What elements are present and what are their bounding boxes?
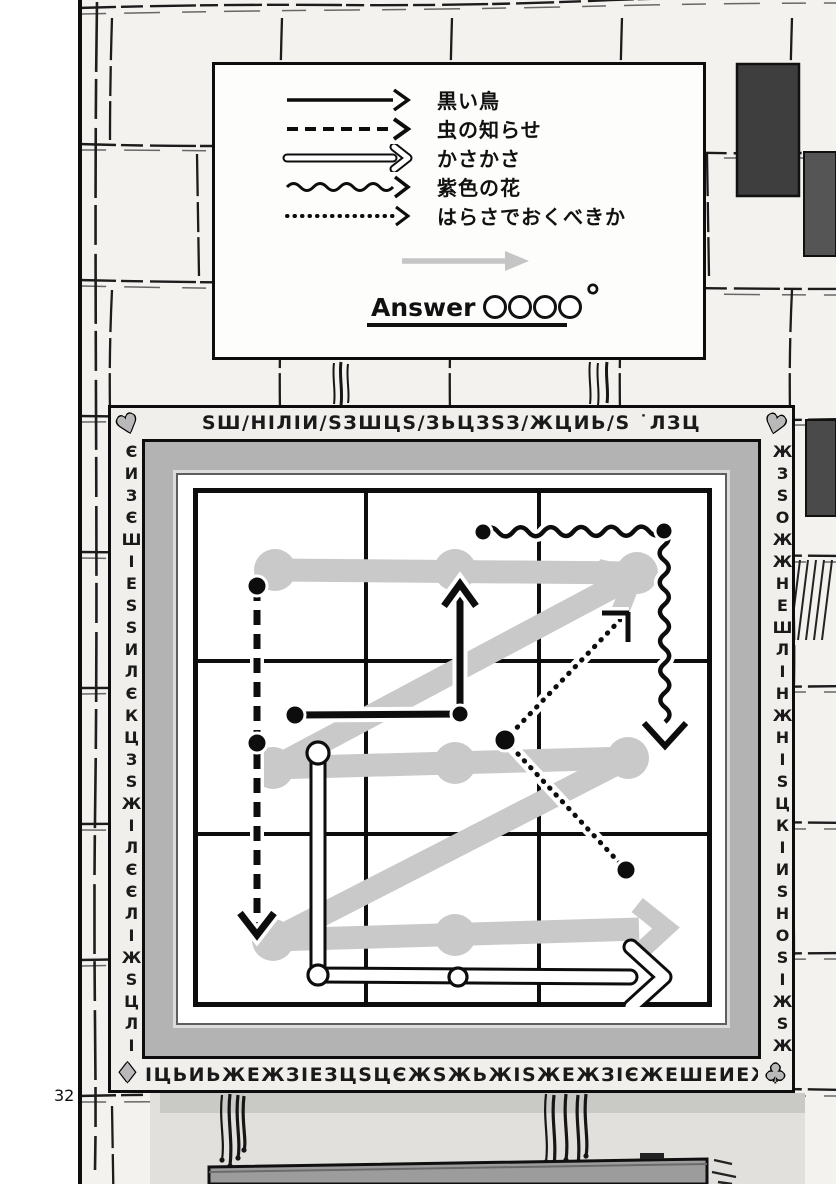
answer-blank-circles: [483, 295, 583, 319]
solid-arrow-icon: [281, 86, 413, 114]
answer-circle: [558, 295, 582, 319]
answer-row: Answer °: [371, 291, 601, 323]
legend-item: はらさでおくべきか: [215, 201, 703, 230]
legend-item-label: 黒い鳥: [437, 85, 500, 114]
legend-item-label: かさかさ: [437, 143, 521, 172]
wavy-arrow: [287, 177, 408, 197]
answer-circle: [533, 295, 557, 319]
legend-box: 黒い鳥虫の知らせかさかさ紫色の花はらさでおくべきか Answer °: [212, 62, 706, 360]
club-suit-icon: ♣: [759, 1057, 792, 1090]
gray-answer-arrow-icon: [399, 249, 543, 273]
answer-circle: [508, 295, 532, 319]
answer-circle: [483, 295, 507, 319]
frame-border-text-bottom: ІЦЬИЬЖЕЖЗІЕЗЦЅЦЄЖЅЖЬЖІЅЖЕЖЗІЄЖЕШЕИЕЖЕЖ: [145, 1060, 758, 1090]
picture-frame: ЅШ/НІЛІИ/ЅЗШЦЅ/ЗЬЦЗЅЗ/ЖЦИЬ/Ѕ ˙ЛЗЦ ІЦЬИЬЖ…: [108, 405, 795, 1093]
legend-rows: 黒い鳥虫の知らせかさかさ紫色の花はらさでおくべきか: [215, 85, 703, 230]
diamond-suit-icon: ♦: [111, 1057, 144, 1090]
dashed-arrow: [287, 119, 408, 139]
wavy-arrow-icon: [281, 173, 413, 201]
legend-item: 虫の知らせ: [215, 114, 703, 143]
legend-item: 黒い鳥: [215, 85, 703, 114]
heart-suit-icon: ♥: [755, 404, 795, 444]
legend-item-label: 紫色の花: [437, 172, 521, 201]
puzzle-grid: [193, 488, 712, 1007]
answer-label: Answer: [371, 293, 475, 322]
degree-mark: °: [584, 293, 601, 303]
dotted-arrow-icon: [281, 202, 413, 230]
page-number: 32: [54, 1086, 74, 1105]
double-arrow-icon: [281, 144, 413, 172]
frame-border-text-right: ЖЗЅОЖЖНЕШЛІНЖНІЅЦКІИЅНОЅІЖЅЖІЛЕЖЗЖ: [762, 442, 792, 1056]
legend-item: 紫色の花: [215, 172, 703, 201]
legend-item-label: はらさでおくべきか: [437, 201, 626, 230]
double-arrow: [287, 147, 408, 169]
answer-underline: [367, 323, 567, 327]
legend-item: かさかさ: [215, 143, 703, 172]
manga-page: 黒い鳥虫の知らせかさかさ紫色の花はらさでおくべきか Answer ° ЅШ/НІ…: [0, 0, 836, 1184]
solid-arrow: [287, 90, 408, 110]
dashed-arrow-icon: [281, 115, 413, 143]
frame-border-text-top: ЅШ/НІЛІИ/ЅЗШЦЅ/ЗЬЦЗЅЗ/ЖЦИЬ/Ѕ ˙ЛЗЦ: [145, 408, 758, 438]
frame-border-text-left: ЄИЗЄШІЕЅЅИЛЄКЦЗЅЖІЛЄЄЛІЖЅЦЛІЅІЖЄИУ: [111, 442, 141, 1056]
legend-item-label: 虫の知らせ: [437, 114, 542, 143]
dotted-arrow: [287, 207, 408, 225]
